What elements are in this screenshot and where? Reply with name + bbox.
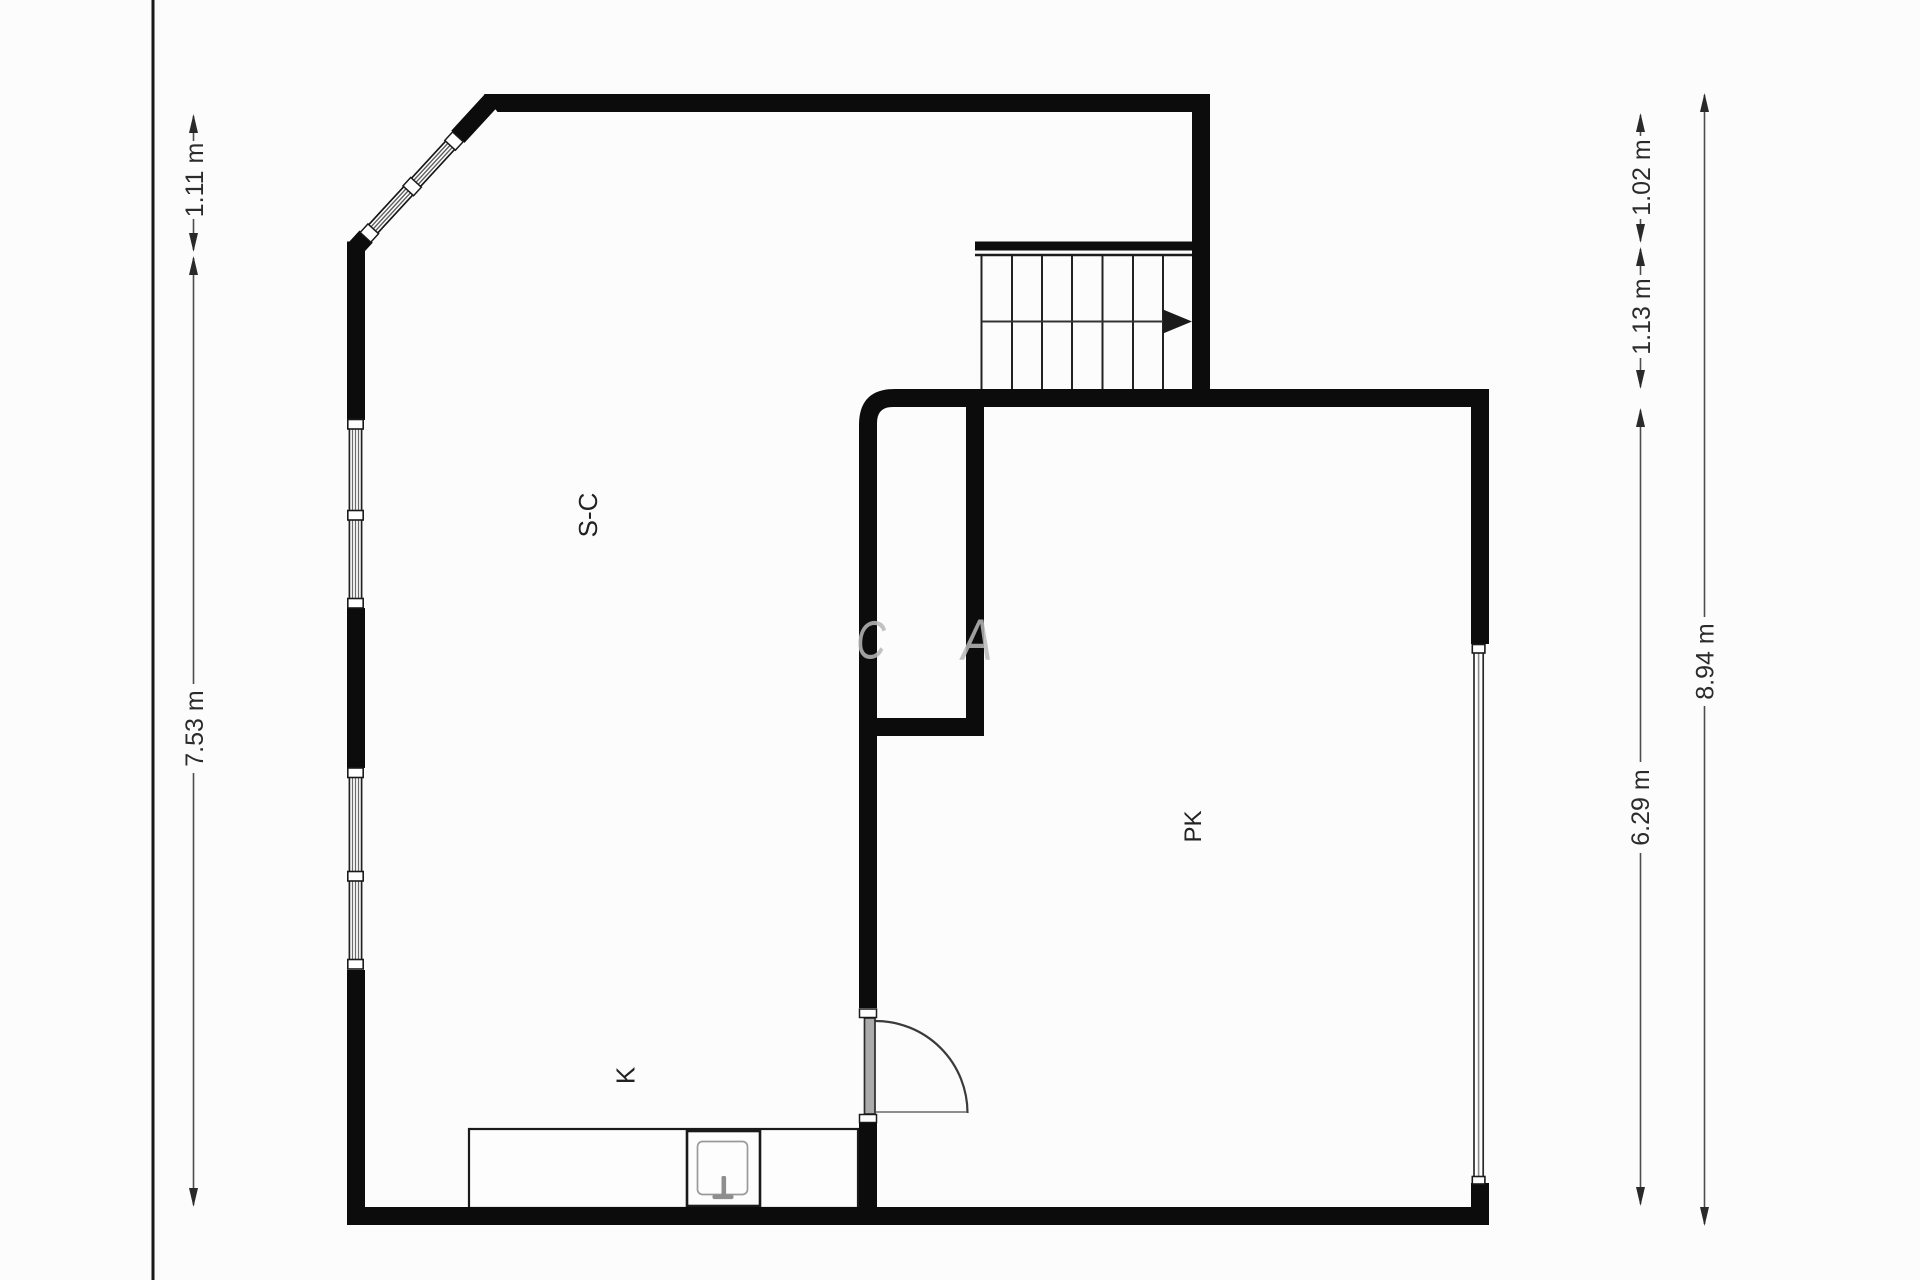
svg-text:6.29 m: 6.29 m — [1627, 769, 1655, 845]
svg-text:1.11 m: 1.11 m — [181, 143, 209, 218]
svg-text:7.53 m: 7.53 m — [181, 690, 209, 766]
svg-text:8.94 m: 8.94 m — [1691, 623, 1719, 699]
svg-text:1.13 m: 1.13 m — [1628, 278, 1656, 354]
svg-text:S-C: S-C — [573, 493, 603, 538]
svg-text:A: A — [959, 608, 993, 673]
svg-text:1.02 m: 1.02 m — [1628, 139, 1656, 215]
svg-text:K: K — [611, 1066, 641, 1084]
svg-text:C: C — [856, 611, 886, 671]
svg-text:PK: PK — [1180, 810, 1207, 842]
